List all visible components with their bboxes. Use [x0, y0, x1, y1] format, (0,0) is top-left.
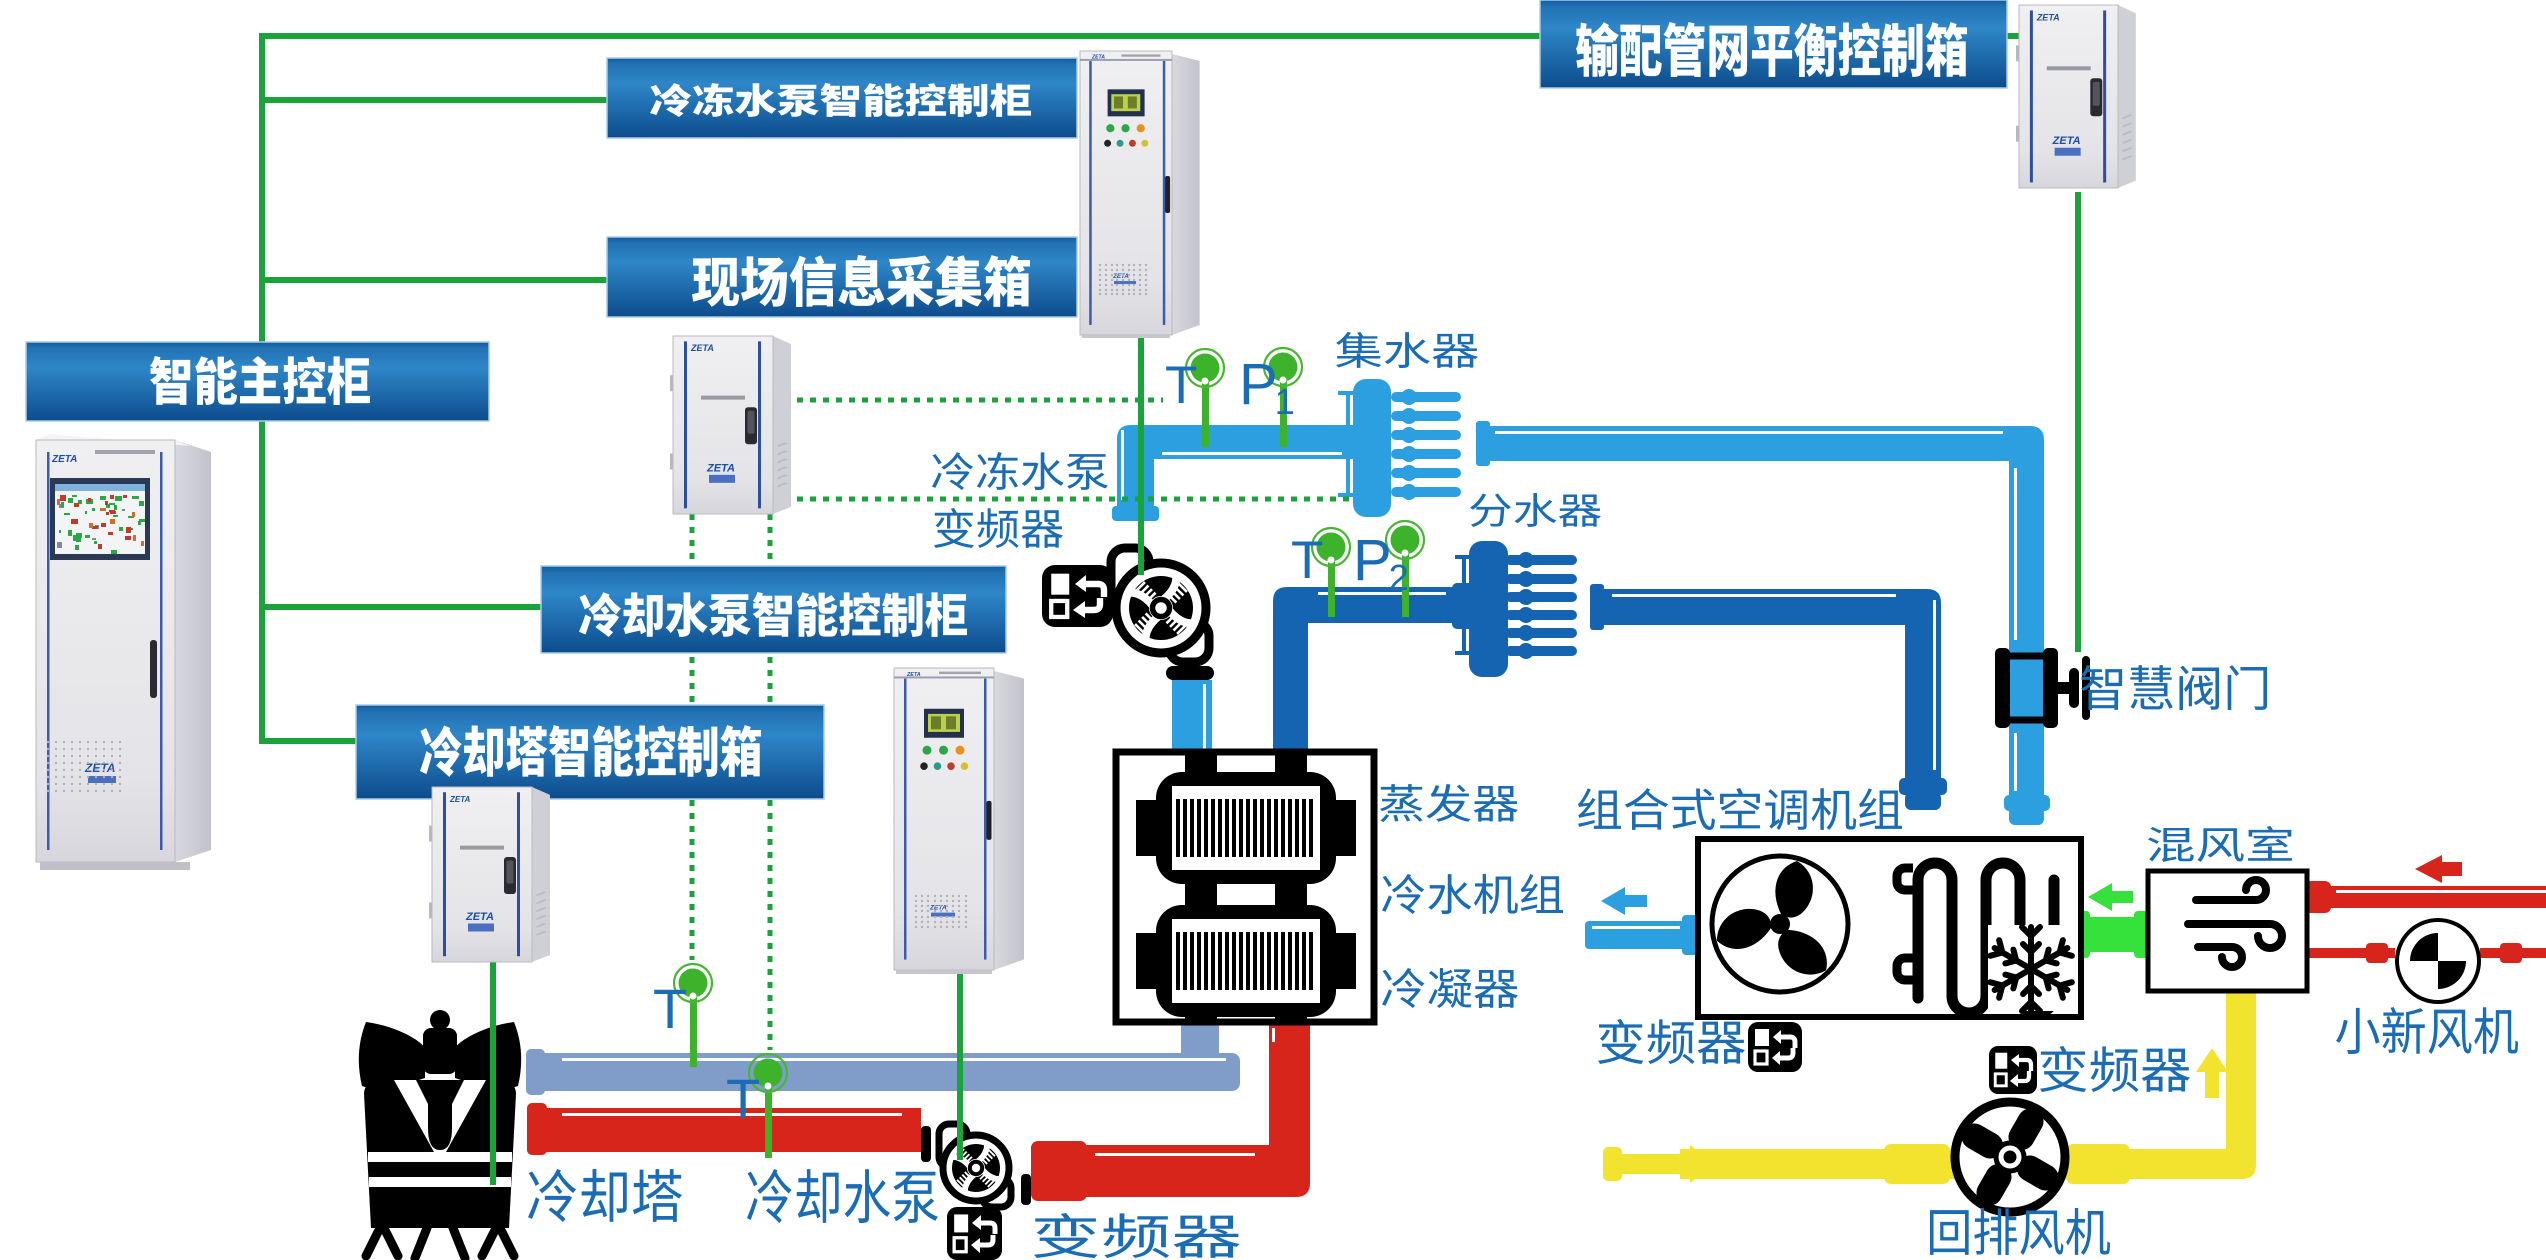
svg-text:ZETA: ZETA [449, 795, 471, 804]
svg-text:ZETA: ZETA [706, 462, 735, 474]
svg-text:ZETA: ZETA [2052, 135, 2081, 147]
svg-text:ZETA: ZETA [690, 343, 714, 353]
svg-text:T: T [653, 977, 687, 1040]
svg-text:T: T [1165, 356, 1197, 415]
svg-text:ZETA: ZETA [906, 672, 921, 678]
svg-text:ZETA: ZETA [929, 905, 947, 912]
svg-text:ZETA: ZETA [465, 911, 494, 923]
svg-text:ZETA: ZETA [2036, 13, 2060, 23]
svg-text:ZETA: ZETA [51, 454, 77, 465]
svg-text:ZETA: ZETA [1112, 273, 1129, 280]
svg-text:T: T [726, 1067, 760, 1130]
svg-text:ZETA: ZETA [1091, 54, 1105, 60]
svg-text:T: T [1291, 531, 1323, 590]
